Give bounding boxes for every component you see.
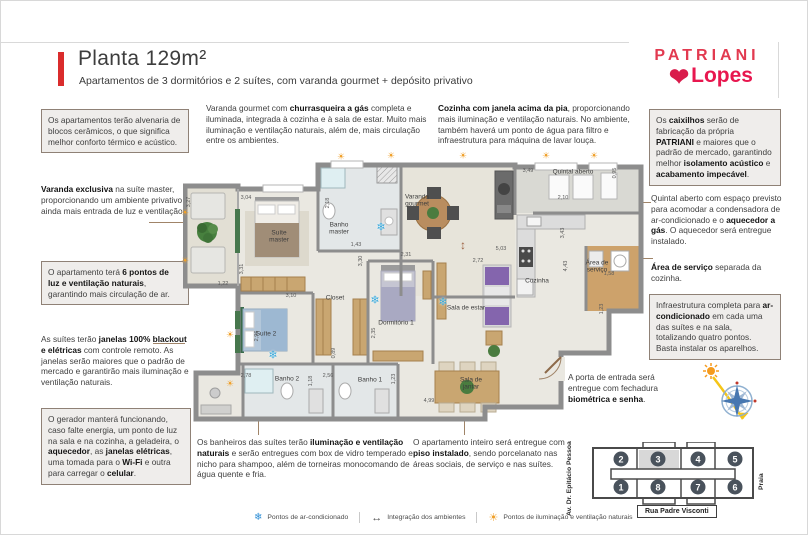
dimension-label-6: 3,49 — [523, 168, 534, 174]
note-top-cozinha: Cozinha com janela acima da pia, proporc… — [438, 103, 646, 146]
note-right-infra-ar: Infraestrutura completa para ar-condicio… — [649, 294, 781, 360]
legend: ❄Pontos de ar-condicionado↔Integração do… — [254, 511, 633, 524]
dimension-label-17: 0,89 — [331, 348, 337, 359]
header-divider — [1, 42, 629, 43]
note-right-caixilhos: Os caixilhos serão de fabricação da próp… — [649, 109, 781, 186]
room-label-sala-de-estar: Sala de estar — [447, 304, 485, 311]
street-label-left: Av. Dr. Epitácio Pessoa — [566, 441, 573, 516]
logo-divider — [778, 42, 779, 98]
key-plan-unit-5: 5 — [728, 452, 743, 467]
natural-light-icon: ☀ — [337, 153, 345, 162]
compass-icon — [699, 361, 765, 429]
floor-plan-sheet: Planta 129m² Apartamentos de 3 dormitóri… — [0, 0, 808, 535]
key-plan-unit-2: 2 — [614, 452, 629, 467]
lopes-logo-text: Lopes — [691, 64, 753, 87]
note-right-quintal: Quintal aberto com espaço previsto para … — [651, 193, 783, 247]
ac-point-icon: ❄ — [254, 512, 262, 523]
dimension-label-16: 2,35 — [371, 328, 377, 339]
room-label-banho-1: Banho 1 — [358, 376, 382, 383]
dimension-label-2: 1,22 — [218, 281, 229, 287]
ac-point-icon: ❄ — [268, 351, 277, 362]
room-label-suite-master: Suítemaster — [269, 230, 289, 245]
key-plan-unit-3: 3 — [651, 452, 666, 467]
key-plan-unit-1: 1 — [614, 480, 629, 495]
legend-label: Integração dos ambientes — [387, 514, 465, 521]
page-subtitle: Apartamentos de 3 dormitórios e 2 suítes… — [79, 75, 473, 87]
dimension-label-18: 3,30 — [358, 256, 364, 267]
integration-icon: ↔ — [371, 512, 382, 524]
dimension-label-9: 3,43 — [560, 228, 566, 239]
room-label-sala-de-jantar: Sala dejantar — [460, 377, 482, 392]
natural-light-icon: ☀ — [226, 380, 234, 389]
ac-point-icon: ❄ — [370, 296, 379, 307]
plan-overlay: SuítemasterBanhomasterVarandagourmetQuin… — [183, 151, 661, 433]
dimension-label-10: 4,43 — [563, 261, 569, 272]
dimension-label-0: 3,04 — [241, 195, 252, 201]
note-left-varanda-exclusiva: Varanda exclusiva na suíte master, propo… — [41, 184, 191, 216]
key-plan-unit-6: 6 — [728, 480, 743, 495]
dimension-label-4: 2,18 — [325, 198, 331, 209]
page-title: Planta 129m² — [78, 47, 207, 71]
note-left-pontos-de-luz: O apartamento terá 6 pontos de luz e ven… — [41, 261, 189, 305]
room-label-quintal-aberto: Quintal aberto — [553, 168, 594, 175]
dimension-label-21: 2,78 — [241, 373, 252, 379]
natural-light-icon: ☀ — [542, 152, 550, 161]
dimension-label-3: 3,31 — [239, 264, 245, 275]
dimension-label-12: 1,23 — [599, 304, 605, 315]
key-plan-unit-8: 8 — [651, 480, 666, 495]
room-label-cozinha: Cozinha — [525, 277, 549, 284]
heart-icon: ❤ — [669, 64, 689, 91]
dimension-label-24: 1,23 — [391, 374, 397, 385]
dimension-label-14: 2,72 — [473, 258, 484, 264]
natural-light-icon: ☀ — [459, 152, 467, 161]
note-left-alvenaria: Os apartamentos terão alvenaria de bloco… — [41, 109, 189, 153]
legend-item-ac: ❄Pontos de ar-condicionado — [254, 512, 348, 523]
red-accent-bar — [58, 52, 64, 86]
dimension-label-5: 1,43 — [351, 242, 362, 248]
lopes-logo: ❤Lopes — [645, 63, 777, 92]
dimension-label-22: 1,18 — [308, 376, 314, 387]
dimension-label-7: 0,95 — [612, 168, 618, 179]
dimension-label-13: 5,03 — [496, 246, 507, 252]
natural-light-icon: ☀ — [181, 209, 189, 218]
floor-plan: SuítemasterBanhomasterVarandagourmetQuin… — [183, 151, 661, 433]
room-label-dormitorio-1: Dormitório 1 — [378, 319, 413, 326]
room-label-banho-master: Banhomaster — [329, 222, 349, 237]
room-label-varanda-gourmet: Varandagourmet — [405, 194, 429, 209]
room-label-banho-2: Banho 2 — [275, 375, 299, 382]
dimension-label-11: 1,58 — [604, 271, 615, 277]
natural-light-icon: ☀ — [590, 152, 598, 161]
dimension-label-25: 4,99 — [424, 398, 435, 404]
natural-light-icon: ☀ — [387, 152, 395, 161]
natural-light-icon: ☀ — [226, 331, 234, 340]
note-top-varanda-gourmet: Varanda gourmet com churrasqueira a gás … — [206, 103, 434, 146]
room-label-closet: Closet — [326, 294, 344, 301]
ac-point-icon: ❄ — [376, 223, 385, 234]
dimension-label-8: 2,10 — [558, 195, 569, 201]
key-plan-unit-4: 4 — [691, 452, 706, 467]
legend-divider — [359, 512, 360, 523]
dimension-label-23: 2,56 — [323, 373, 334, 379]
dimension-label-19: 3,10 — [286, 293, 297, 299]
note-bottom-piso: O apartamento inteiro será entregue com … — [413, 437, 578, 469]
legend-label: Pontos de ar-condicionado — [267, 514, 348, 521]
natural-light-icon: ☀ — [181, 257, 189, 266]
building-key-plan: 23451876 — [591, 442, 757, 506]
key-plan-unit-7: 7 — [691, 480, 706, 495]
dimension-label-20: 2,96 — [254, 331, 260, 342]
note-left-gerador: O gerador manterá funcionando, caso falt… — [41, 408, 191, 485]
legend-item-sun: ☀Pontos de iluminação e ventilação natur… — [488, 511, 632, 524]
street-label-right: Praia — [758, 473, 765, 490]
legend-item-int: ↔Integração dos ambientes — [371, 512, 465, 524]
ac-point-icon: ❄ — [438, 298, 447, 309]
dimension-label-15: 2,31 — [401, 252, 412, 258]
integration-icon: ↕ — [460, 239, 466, 251]
dimension-label-1: 3,27 — [186, 197, 192, 208]
connector-line-0 — [149, 222, 185, 223]
natural-light-icon: ☀ — [488, 511, 498, 524]
note-right-area-servico: Área de serviço separada da cozinha. — [651, 262, 783, 284]
legend-divider — [476, 512, 477, 523]
note-bottom-banheiros: Os banheiros das suítes terão iluminação… — [197, 437, 429, 480]
connector-line-1 — [153, 343, 185, 344]
